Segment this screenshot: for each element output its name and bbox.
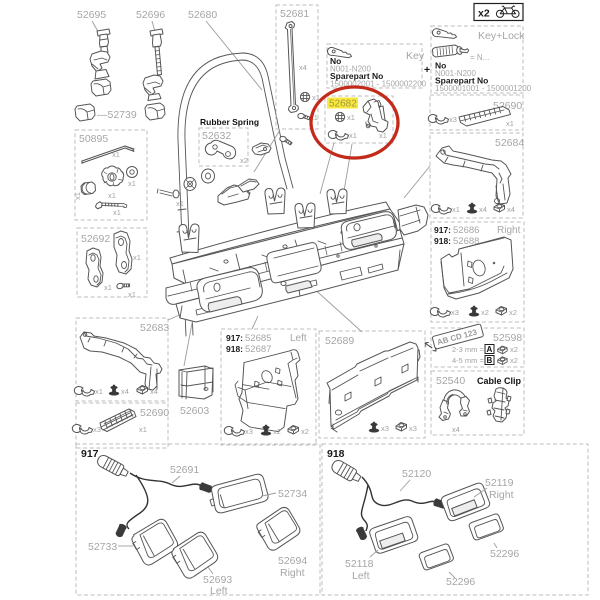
svg-text:52733: 52733: [88, 541, 117, 553]
svg-text:x1: x1: [139, 425, 147, 434]
svg-text:x2: x2: [510, 356, 518, 365]
svg-text:x2: x2: [509, 308, 517, 317]
svg-text:52683: 52683: [140, 322, 169, 334]
svg-text:x2: x2: [510, 345, 518, 354]
svg-text:52682: 52682: [329, 99, 357, 110]
svg-text:x1: x1: [349, 131, 357, 140]
svg-text:52694: 52694: [278, 555, 307, 567]
svg-text:x1: x1: [347, 113, 355, 122]
svg-text:Right: Right: [489, 489, 514, 501]
svg-text:917:: 917:: [434, 225, 451, 235]
svg-text:52684: 52684: [495, 137, 524, 149]
svg-text:+: +: [424, 64, 430, 76]
svg-text:1500001001 - 1500001200: 1500001001 - 1500001200: [435, 84, 532, 93]
svg-text:52696: 52696: [136, 9, 165, 21]
svg-text:52691: 52691: [170, 464, 199, 476]
svg-text:52119: 52119: [485, 477, 514, 489]
svg-text:Right: Right: [280, 567, 305, 579]
svg-text:x1: x1: [128, 290, 136, 299]
svg-text:x1: x1: [108, 191, 116, 200]
svg-text:52689: 52689: [325, 335, 354, 347]
svg-text:x1: x1: [506, 119, 514, 128]
svg-text:52690: 52690: [140, 407, 169, 419]
svg-text:x4: x4: [299, 63, 307, 72]
svg-text:x3: x3: [451, 308, 459, 317]
svg-text:B: B: [487, 356, 493, 365]
svg-text:52692: 52692: [81, 233, 110, 245]
svg-text:x1: x1: [379, 131, 387, 140]
svg-text:x2: x2: [273, 427, 281, 436]
svg-text:Right: Right: [497, 225, 521, 236]
svg-text:Key+Lock: Key+Lock: [478, 30, 525, 42]
svg-text:52120: 52120: [402, 468, 431, 480]
svg-text:x4: x4: [507, 205, 515, 214]
svg-text:918:: 918:: [434, 236, 451, 246]
svg-text:Left: Left: [352, 570, 370, 582]
svg-text:x1: x1: [128, 179, 136, 188]
svg-text:50895: 50895: [79, 133, 108, 145]
svg-text:917: 917: [81, 448, 99, 460]
svg-text:Cable Clip: Cable Clip: [477, 376, 522, 386]
svg-text:x1: x1: [176, 199, 184, 208]
svg-text:52686: 52686: [453, 225, 479, 236]
svg-text:2-3 mm =: 2-3 mm =: [452, 345, 485, 354]
svg-text:Rubber Spring: Rubber Spring: [200, 117, 259, 127]
svg-text:52296: 52296: [446, 576, 475, 588]
svg-text:52687: 52687: [245, 344, 271, 355]
svg-text:52695: 52695: [77, 9, 106, 21]
svg-text:x2: x2: [481, 308, 489, 317]
svg-text:x3: x3: [409, 424, 417, 433]
svg-text:x2: x2: [301, 427, 309, 436]
svg-text:x1: x1: [95, 387, 103, 396]
svg-text:x3: x3: [449, 115, 457, 124]
svg-text:52540: 52540: [436, 375, 465, 387]
svg-text:x1: x1: [112, 150, 120, 159]
svg-text:x4: x4: [452, 425, 460, 434]
svg-text:52685: 52685: [245, 333, 271, 344]
svg-text:A: A: [487, 345, 493, 354]
svg-text:x1: x1: [133, 253, 141, 262]
svg-text:x2: x2: [240, 156, 248, 165]
svg-text:918:: 918:: [226, 344, 243, 354]
svg-text:x1: x1: [104, 283, 112, 292]
svg-text:x3: x3: [93, 425, 101, 434]
svg-text:52598: 52598: [493, 332, 522, 344]
svg-text:x4: x4: [479, 205, 487, 214]
svg-text:4-5 mm =: 4-5 mm =: [452, 356, 485, 365]
svg-text:52734: 52734: [278, 488, 307, 500]
svg-text:—52739: —52739: [97, 109, 137, 121]
svg-text:= N...: = N...: [470, 53, 489, 62]
svg-text:52296: 52296: [490, 548, 519, 560]
svg-text:52680: 52680: [188, 9, 217, 21]
svg-text:x1: x1: [73, 192, 82, 200]
svg-text:x1: x1: [452, 205, 460, 214]
svg-text:918: 918: [327, 448, 345, 460]
svg-text:x1: x1: [113, 208, 121, 217]
svg-text:52603: 52603: [180, 405, 209, 417]
svg-text:52118: 52118: [345, 558, 374, 570]
svg-text:Key: Key: [406, 50, 425, 62]
svg-text:x3: x3: [245, 427, 253, 436]
svg-text:x3: x3: [381, 424, 389, 433]
svg-text:Left: Left: [210, 585, 228, 597]
svg-text:52681: 52681: [280, 8, 309, 20]
svg-text:917:: 917:: [226, 333, 243, 343]
svg-text:Left: Left: [290, 333, 307, 344]
svg-text:x4: x4: [121, 387, 129, 396]
svg-text:x4: x4: [150, 387, 158, 396]
svg-text:x2: x2: [478, 8, 490, 20]
